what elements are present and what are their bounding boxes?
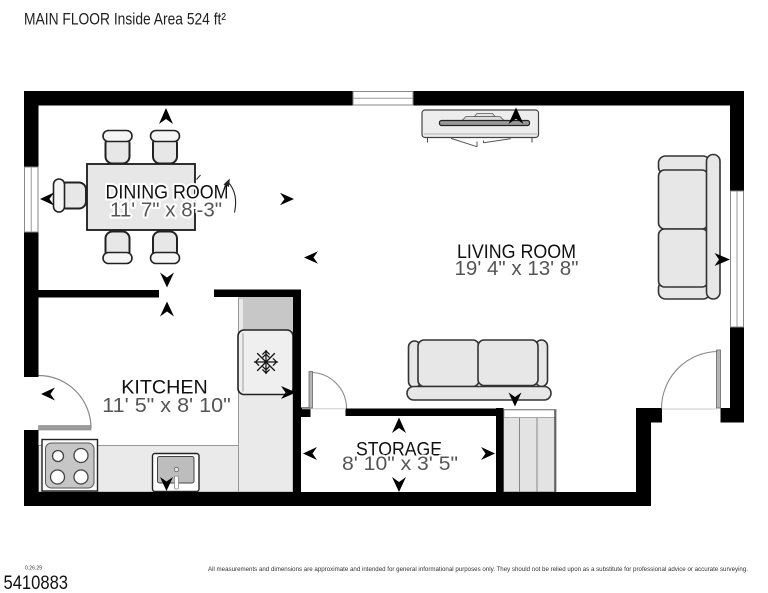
svg-text:MAIN FLOOR Inside Area 524 ft²: MAIN FLOOR Inside Area 524 ft²: [24, 11, 226, 29]
svg-text:5410883: 5410883: [4, 573, 69, 593]
svg-text:0.26.29: 0.26.29: [25, 566, 42, 572]
svg-text:11' 5" x 8' 10": 11' 5" x 8' 10": [102, 395, 231, 417]
svg-text:19' 4" x 13' 8": 19' 4" x 13' 8": [455, 258, 579, 280]
svg-text:11' 7" x 8'-3": 11' 7" x 8'-3": [110, 200, 222, 222]
svg-text:8' 10" x 3' 5": 8' 10" x 3' 5": [342, 454, 458, 475]
svg-text:All measurements and dimension: All measurements and dimensions are appr…: [208, 566, 748, 573]
